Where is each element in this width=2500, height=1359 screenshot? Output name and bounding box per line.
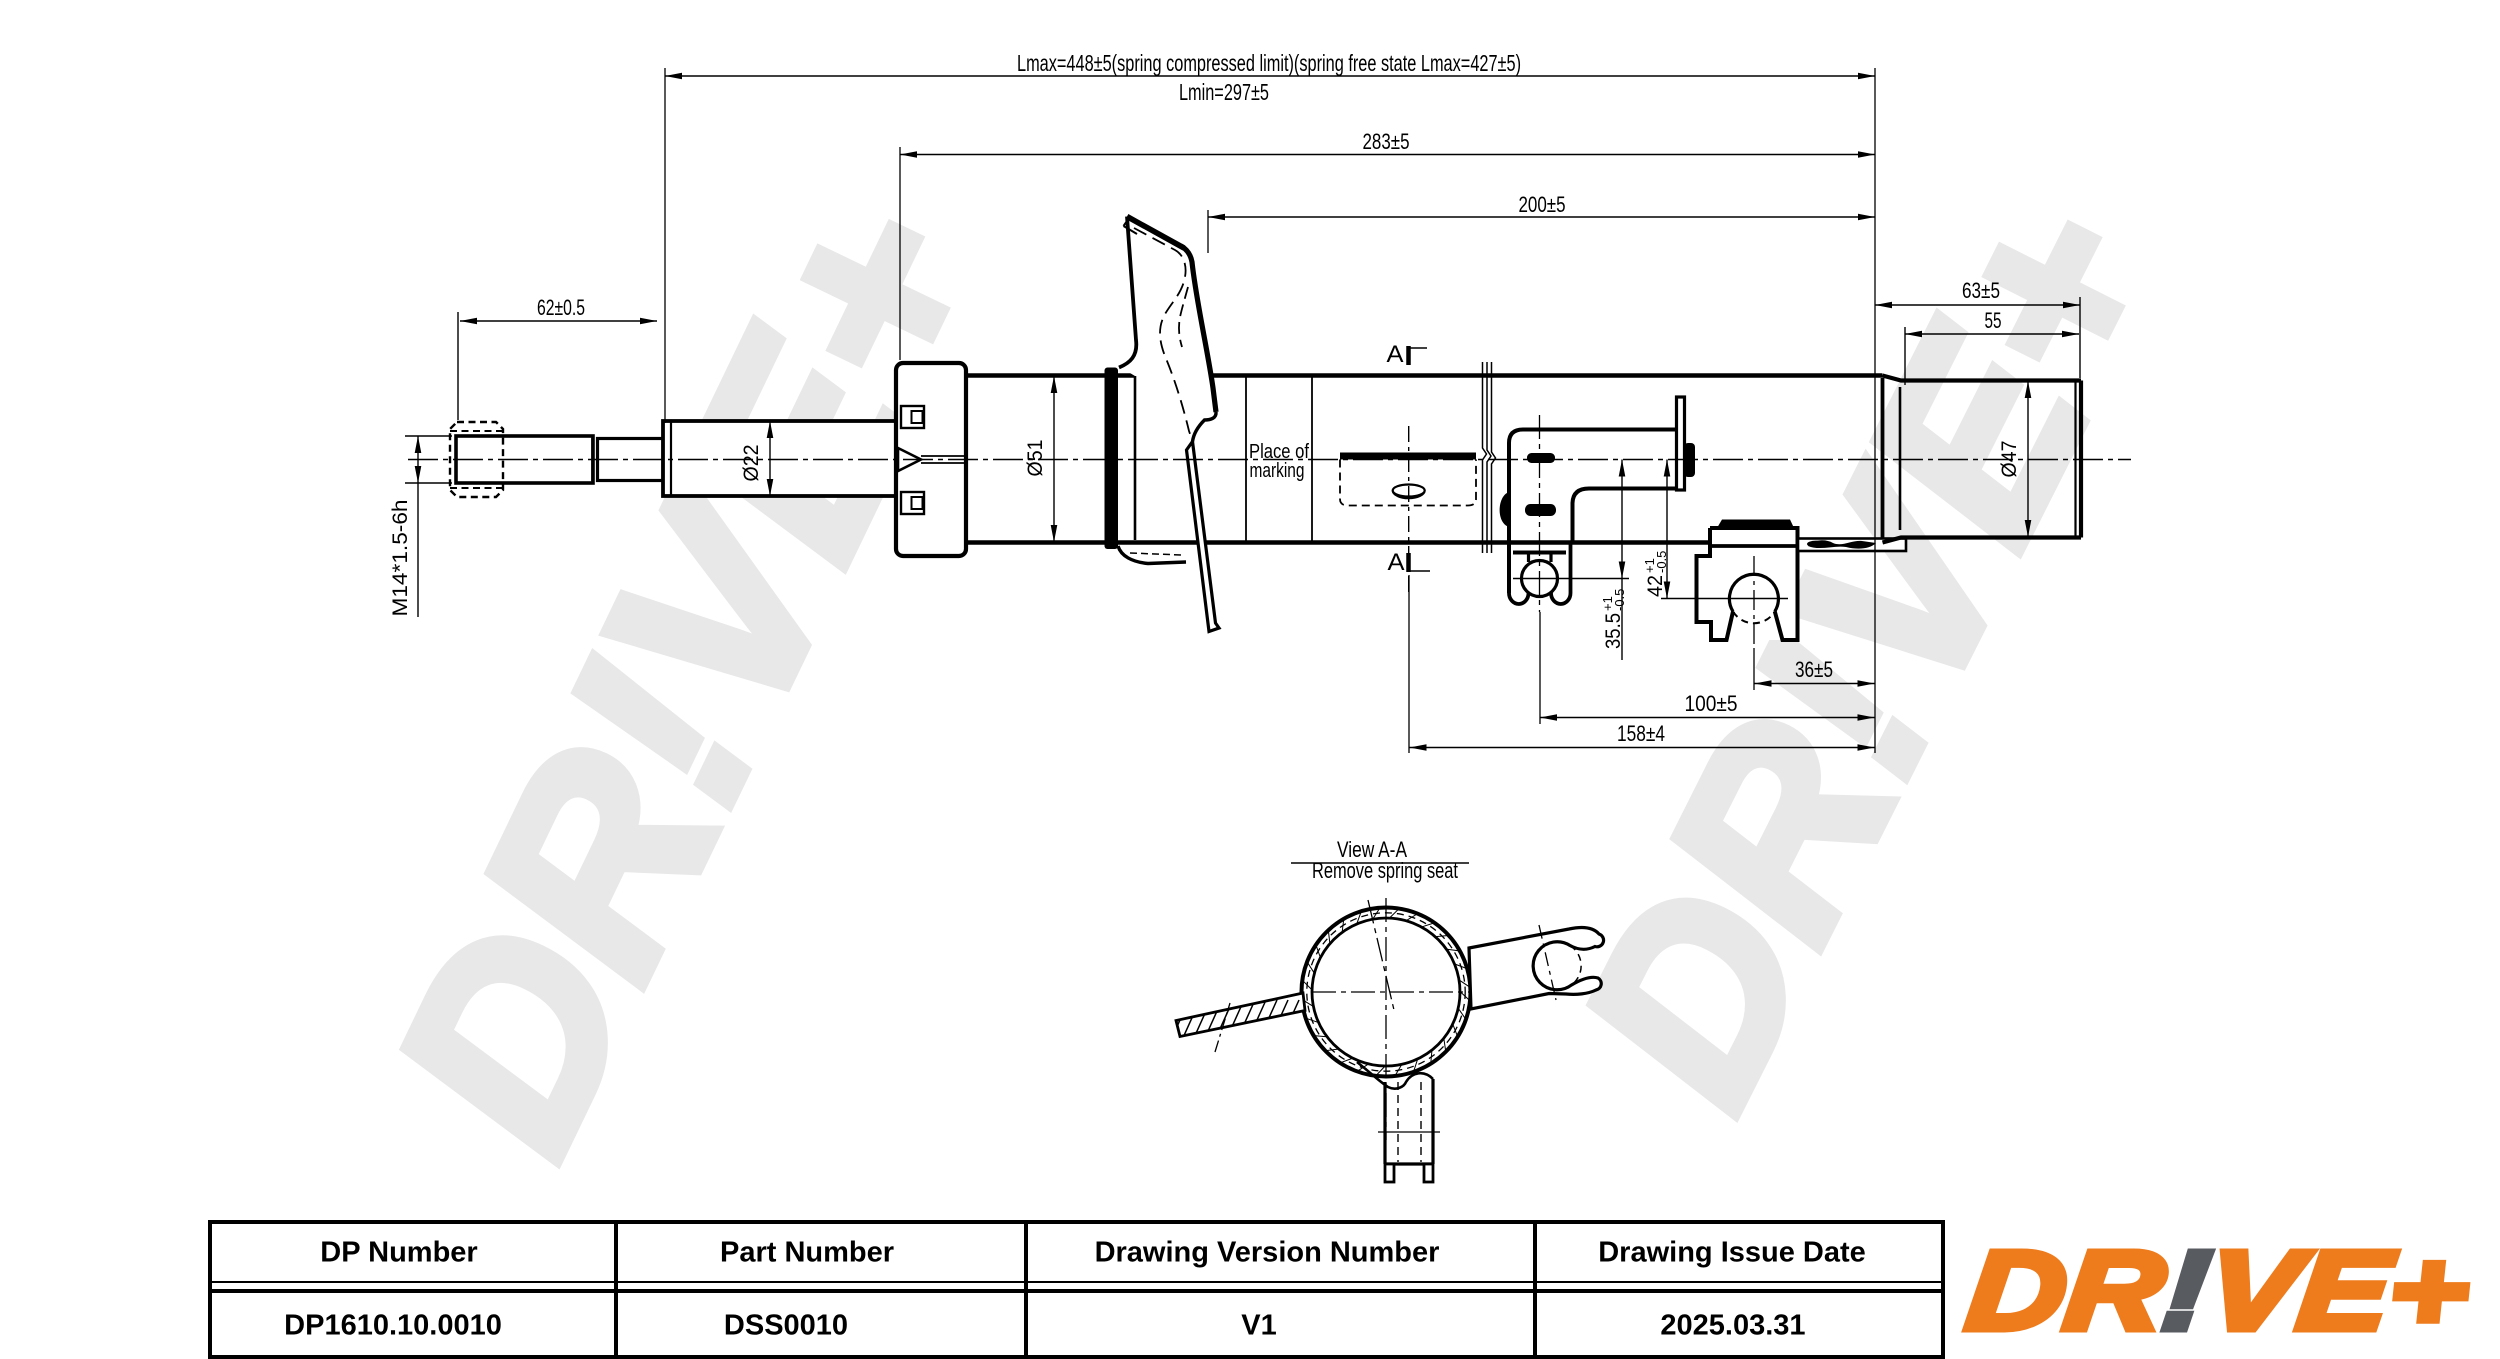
svg-text:283±5: 283±5 xyxy=(1363,129,1410,154)
svg-text:35.5: 35.5 xyxy=(1602,613,1625,649)
svg-text:marking: marking xyxy=(1250,460,1305,482)
svg-text:A: A xyxy=(1388,549,1405,576)
svg-text:-0.5: -0.5 xyxy=(1654,551,1669,573)
svg-text:55: 55 xyxy=(1985,308,2002,333)
svg-text:42: 42 xyxy=(1644,575,1667,597)
svg-text:A: A xyxy=(1387,341,1404,368)
svg-text:100±5: 100±5 xyxy=(1685,691,1738,716)
svg-text:Ø51: Ø51 xyxy=(1024,440,1047,477)
svg-text:62±0.5: 62±0.5 xyxy=(537,295,585,320)
svg-text:Lmin=297±5: Lmin=297±5 xyxy=(1179,79,1269,105)
svg-text:-0.5: -0.5 xyxy=(1612,589,1627,611)
svg-text:36±5: 36±5 xyxy=(1795,657,1833,682)
svg-text:Remove spring seat: Remove spring seat xyxy=(1312,858,1458,883)
svg-text:Lmax=448±5(spring compressed l: Lmax=448±5(spring compressed limit)(spri… xyxy=(1017,50,1521,76)
svg-text:200±5: 200±5 xyxy=(1519,192,1566,217)
svg-text:M14*1.5-6h: M14*1.5-6h xyxy=(389,500,412,617)
svg-text:63±5: 63±5 xyxy=(1962,278,2000,303)
svg-text:DR!VE+: DR!VE+ xyxy=(1962,1236,2475,1353)
svg-text:Ø47: Ø47 xyxy=(1998,441,2021,478)
svg-text:Ø22: Ø22 xyxy=(740,445,763,482)
svg-text:158±4: 158±4 xyxy=(1617,721,1665,746)
